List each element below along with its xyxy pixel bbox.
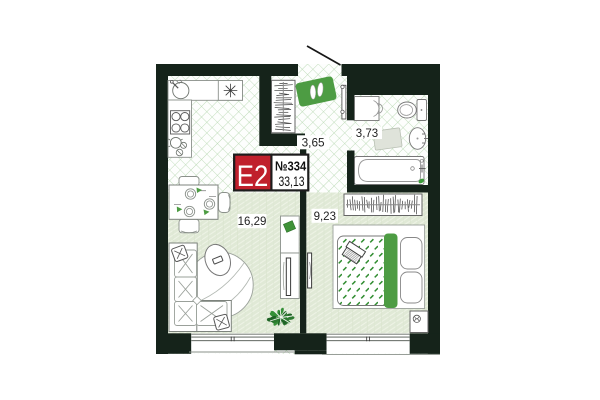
svg-text:E2: E2	[237, 160, 268, 193]
svg-text:9,23: 9,23	[314, 211, 336, 223]
svg-text:№334: №334	[275, 158, 307, 173]
svg-text:3,65: 3,65	[302, 136, 325, 150]
svg-text:16,29: 16,29	[238, 216, 267, 228]
svg-text:3,73: 3,73	[356, 128, 378, 140]
svg-text:33,13: 33,13	[279, 174, 305, 189]
